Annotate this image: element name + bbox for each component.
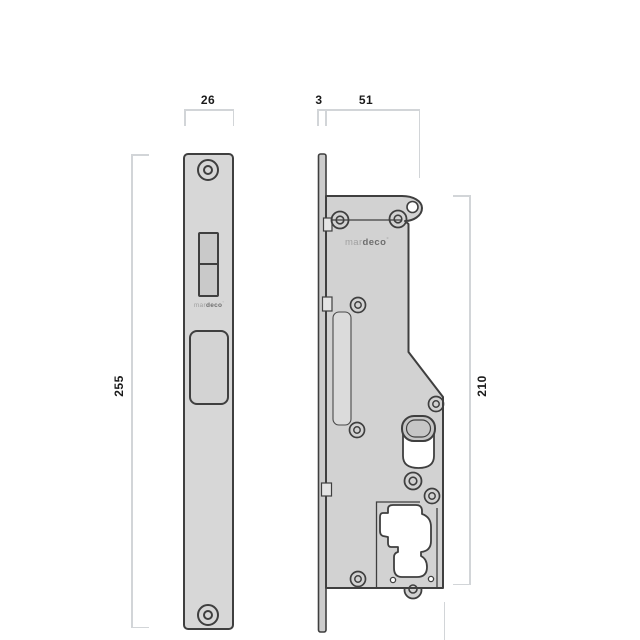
fixing-tab-hole (407, 202, 418, 213)
dimension-tick (131, 627, 149, 629)
rivet-dot (428, 576, 433, 581)
dimension-line (469, 195, 471, 585)
dimension-tick (453, 584, 471, 586)
dimension-label-case-width: 51 (353, 93, 379, 107)
dimension-tick (233, 109, 235, 126)
technical-drawing-canvas: mardeco° (0, 0, 640, 640)
dimension-label-case-height: 210 (475, 366, 489, 406)
dimension-tick (131, 154, 149, 156)
dimension-extension-line-cutoff (444, 602, 446, 640)
inner-mechanism-panel (333, 312, 351, 425)
edge-notch-3 (322, 483, 332, 496)
edge-notch-2 (323, 297, 333, 311)
dimension-label-faceplate-height: 255 (112, 366, 126, 406)
dimension-label-faceplate-thickness: 3 (311, 93, 327, 107)
dimension-line (131, 154, 133, 628)
dimension-tick (317, 109, 319, 126)
rivet-dot (390, 577, 395, 582)
dimension-label-faceplate-width: 26 (194, 93, 222, 107)
dimension-line (317, 109, 420, 111)
dimension-tick (453, 195, 471, 197)
dimension-tick (325, 109, 327, 126)
dimension-tick (184, 109, 186, 126)
dimension-line (184, 109, 234, 111)
brand-label-side: mardeco° (335, 237, 399, 248)
dimension-extension-line (419, 109, 421, 178)
